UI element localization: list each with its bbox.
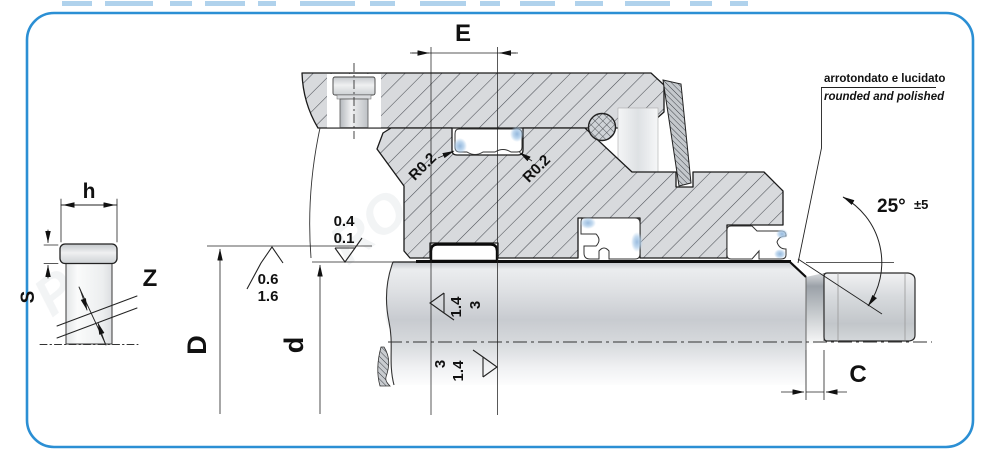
rod-end-chamfer-band	[806, 273, 824, 346]
guide-ring	[431, 245, 497, 262]
roughness-groove-bottom-value: 0.1	[334, 230, 355, 247]
o-ring	[589, 114, 616, 141]
top-cropped-watermark-row	[62, 1, 748, 6]
ring-width-label: h	[83, 180, 96, 203]
roughness-rod-above-second: 3	[467, 301, 484, 309]
roughness-rod-below-first: 3	[432, 360, 449, 368]
groove-width-label: E	[455, 20, 471, 47]
seal-installation-drawing: PR RO OM N	[0, 0, 1000, 461]
roughness-rod-above-first: 1.4	[448, 296, 465, 318]
ring-gap-label: Z	[143, 265, 158, 292]
drawing-canvas: PR RO OM N	[0, 0, 1000, 461]
surface-note-english: rounded and polished	[824, 91, 945, 103]
surface-note-italian: arrotondato e lucidato	[824, 73, 945, 85]
gland-body	[377, 128, 783, 258]
roughness-bore-top-value: 0.6	[258, 271, 279, 288]
chamfer-angle-value: 25°	[877, 196, 906, 217]
roughness-bore-bottom-value: 1.6	[258, 288, 279, 305]
bore-break-line	[310, 128, 320, 258]
ring-cross-section	[60, 244, 117, 264]
chamfer-angle-tolerance: ±5	[914, 197, 928, 212]
wiper-seal	[727, 226, 788, 259]
rod-seal	[580, 217, 643, 259]
retaining-sliver-hatch	[663, 80, 691, 186]
chamfer-length-label: C	[849, 361, 866, 388]
roughness-rod-below-second: 1.4	[450, 360, 467, 382]
bore-diameter-label: D	[182, 335, 212, 355]
rod-diameter-label: d	[279, 337, 309, 354]
roughness-groove-top-value: 0.4	[334, 213, 356, 230]
ring-thickness-label: S	[18, 291, 39, 304]
groove-seal	[453, 126, 524, 155]
